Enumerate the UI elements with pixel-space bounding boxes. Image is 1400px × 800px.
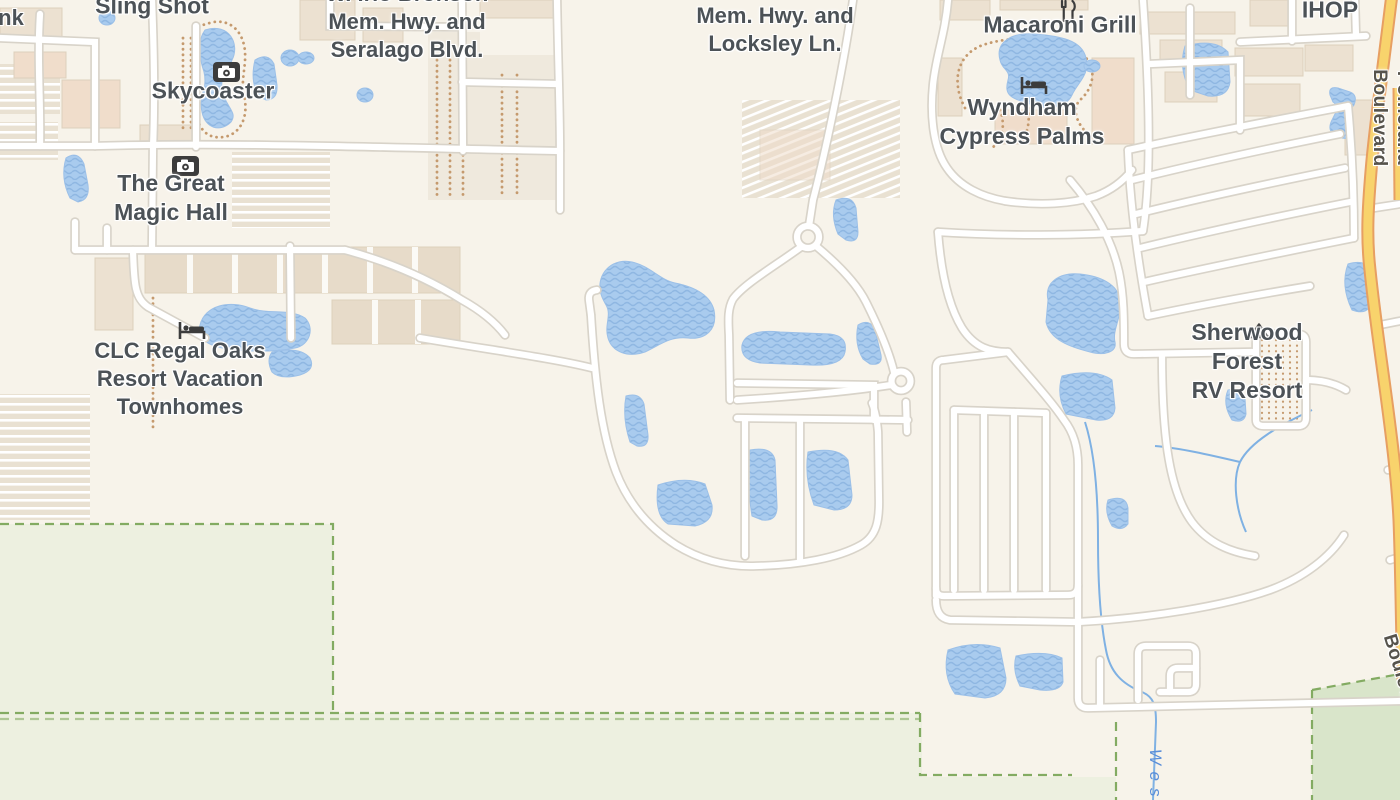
map-graphics [0, 0, 1400, 800]
map-canvas[interactable]: nkSling ShotSkycoasterThe Great Magic Ha… [0, 0, 1400, 800]
